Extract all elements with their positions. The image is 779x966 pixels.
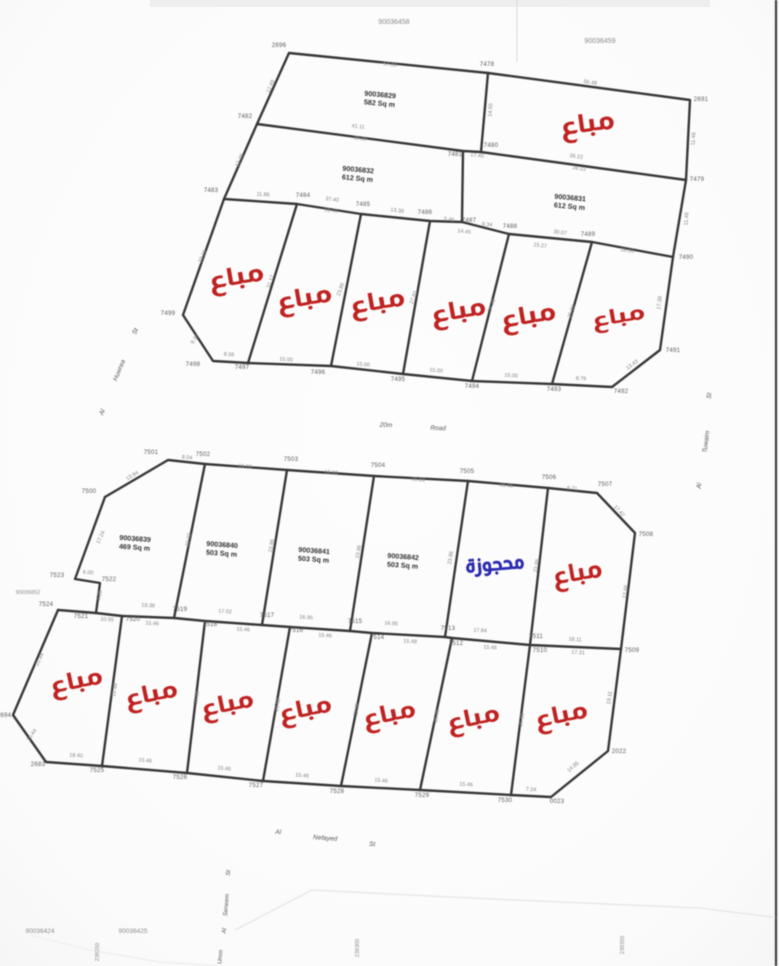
svg-text:7519: 7519 [173, 606, 188, 613]
svg-text:7509: 7509 [625, 647, 640, 654]
svg-text:15.46: 15.46 [217, 765, 231, 772]
svg-text:7518: 7518 [203, 621, 218, 628]
svg-text:7483: 7483 [204, 187, 219, 194]
svg-text:7.24: 7.24 [526, 787, 537, 794]
svg-text:90036425: 90036425 [119, 928, 148, 935]
svg-text:7526: 7526 [173, 774, 188, 781]
svg-text:2696: 2696 [272, 42, 287, 49]
svg-text:20m: 20m [379, 422, 393, 429]
svg-text:7496: 7496 [311, 369, 326, 376]
svg-text:7492: 7492 [614, 388, 629, 395]
svg-text:15.46: 15.46 [145, 621, 159, 628]
svg-text:2022: 2022 [612, 748, 627, 755]
svg-text:7500: 7500 [82, 488, 97, 495]
svg-text:17.02: 17.02 [218, 609, 232, 616]
svg-text:15.46: 15.46 [236, 627, 250, 634]
svg-text:90036852: 90036852 [16, 590, 40, 596]
svg-text:7517: 7517 [260, 612, 275, 619]
svg-text:7512: 7512 [449, 640, 464, 647]
svg-text:18.40: 18.40 [69, 753, 83, 760]
svg-text:90036424: 90036424 [26, 928, 55, 935]
svg-text:14.55: 14.55 [488, 103, 495, 117]
svg-text:7502: 7502 [196, 451, 211, 458]
svg-text:7480: 7480 [484, 142, 499, 149]
svg-text:7511: 7511 [529, 633, 543, 640]
svg-text:7528: 7528 [330, 788, 345, 795]
svg-text:7487: 7487 [462, 217, 477, 224]
svg-text:17.31: 17.31 [571, 650, 585, 657]
svg-text:8.04: 8.04 [182, 455, 193, 462]
svg-text:7503: 7503 [284, 456, 299, 463]
svg-text:8.34: 8.34 [482, 221, 493, 228]
svg-text:15.46: 15.46 [374, 777, 388, 784]
svg-text:7514: 7514 [370, 634, 385, 641]
svg-text:7525: 7525 [90, 767, 105, 774]
svg-text:17.84: 17.84 [473, 628, 487, 635]
svg-text:7482: 7482 [238, 113, 253, 120]
svg-text:7505: 7505 [460, 468, 475, 475]
svg-text:239300: 239300 [355, 939, 361, 957]
svg-text:7527: 7527 [249, 782, 264, 789]
svg-text:15.46: 15.46 [483, 645, 497, 652]
svg-text:St: St [226, 869, 233, 876]
svg-text:19.38: 19.38 [141, 603, 155, 610]
svg-text:7498: 7498 [186, 361, 201, 368]
svg-text:90036459: 90036459 [584, 38, 615, 45]
svg-text:7530: 7530 [498, 797, 513, 804]
svg-text:7491: 7491 [666, 347, 681, 354]
svg-text:7513: 7513 [441, 625, 456, 632]
svg-text:Umm: Umm [217, 950, 224, 965]
svg-text:15.00: 15.00 [279, 357, 293, 364]
svg-text:11.48: 11.48 [683, 212, 690, 226]
svg-text:16.95: 16.95 [299, 615, 313, 622]
svg-text:15.48: 15.48 [403, 639, 417, 646]
svg-text:7489: 7489 [581, 231, 596, 238]
svg-text:8.56: 8.56 [224, 352, 235, 359]
svg-text:7479: 7479 [690, 176, 705, 183]
svg-text:15.46: 15.46 [295, 772, 309, 779]
svg-text:7490: 7490 [679, 254, 694, 261]
svg-text:11.86: 11.86 [256, 192, 269, 199]
svg-text:7521: 7521 [74, 613, 89, 620]
svg-text:7501: 7501 [144, 449, 159, 456]
svg-text:7497: 7497 [235, 364, 250, 371]
svg-text:2694: 2694 [0, 712, 12, 719]
svg-text:7523: 7523 [50, 572, 65, 579]
svg-text:15.00: 15.00 [356, 361, 370, 368]
svg-text:15.00: 15.00 [504, 373, 518, 380]
svg-text:239250: 239250 [95, 943, 101, 961]
svg-text:7495: 7495 [391, 376, 406, 383]
svg-text:Al: Al [274, 829, 282, 836]
svg-text:7478: 7478 [480, 61, 495, 68]
svg-text:16.95: 16.95 [384, 621, 398, 628]
svg-text:7506: 7506 [542, 474, 557, 481]
svg-text:7508: 7508 [639, 531, 654, 538]
svg-text:18.11: 18.11 [568, 637, 581, 644]
svg-text:5.46: 5.46 [444, 216, 455, 223]
svg-text:7481: 7481 [448, 151, 463, 158]
svg-text:0023: 0023 [550, 798, 565, 805]
svg-text:7515: 7515 [348, 618, 363, 625]
svg-text:7494: 7494 [465, 383, 480, 390]
svg-text:7484: 7484 [296, 192, 311, 199]
svg-text:10.95: 10.95 [100, 617, 114, 624]
svg-text:7486: 7486 [418, 209, 433, 216]
svg-text:7522: 7522 [102, 576, 117, 583]
svg-text:Al: Al [222, 927, 229, 934]
svg-text:7485: 7485 [356, 201, 371, 208]
svg-text:7507: 7507 [598, 481, 613, 488]
svg-text:7493: 7493 [547, 386, 562, 393]
svg-text:11.48: 11.48 [690, 132, 697, 146]
svg-text:6.00: 6.00 [83, 570, 94, 577]
svg-text:90036458: 90036458 [378, 19, 409, 26]
svg-text:7504: 7504 [371, 462, 386, 469]
svg-text:7488: 7488 [503, 223, 518, 230]
svg-text:7510: 7510 [533, 647, 548, 654]
svg-text:239350: 239350 [620, 936, 626, 954]
svg-text:7524: 7524 [39, 601, 54, 608]
svg-text:8.71: 8.71 [567, 485, 578, 492]
svg-text:15.00: 15.00 [429, 367, 443, 374]
svg-text:2691: 2691 [694, 96, 709, 103]
svg-text:15.46: 15.46 [318, 633, 332, 640]
svg-text:15.46: 15.46 [459, 782, 473, 789]
svg-text:7520: 7520 [126, 616, 141, 623]
svg-text:15.46: 15.46 [138, 757, 152, 764]
svg-text:7499: 7499 [161, 310, 176, 317]
svg-text:Road: Road [430, 425, 446, 433]
svg-text:2683: 2683 [31, 761, 46, 768]
svg-text:8.76: 8.76 [576, 376, 587, 382]
svg-text:7529: 7529 [415, 792, 430, 799]
svg-text:7516: 7516 [289, 627, 304, 634]
